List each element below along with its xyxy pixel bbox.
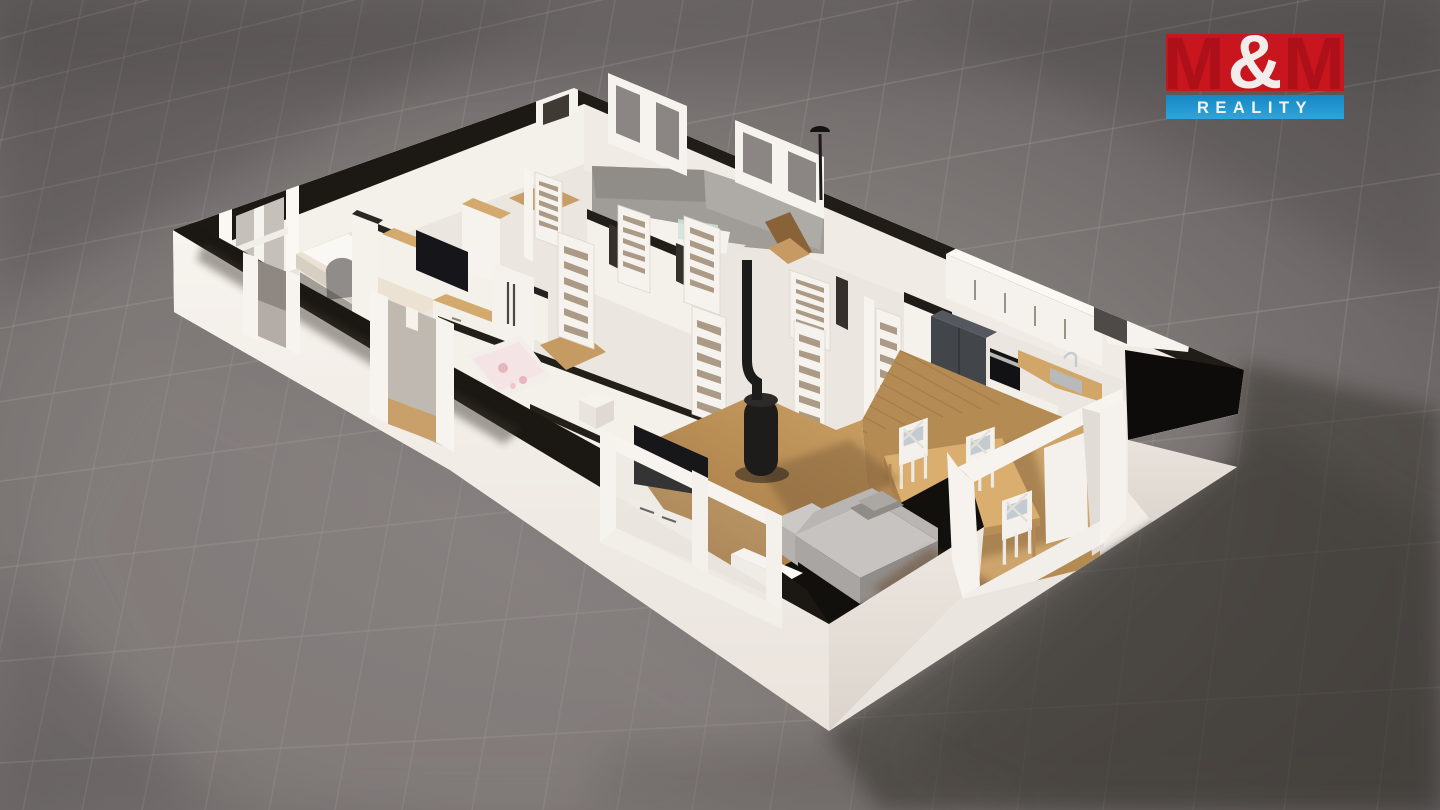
svg-text:&: & <box>1228 20 1283 105</box>
svg-text:M: M <box>1163 22 1225 105</box>
svg-text:M: M <box>1283 22 1345 105</box>
svg-text:REALITY: REALITY <box>1197 99 1313 117</box>
